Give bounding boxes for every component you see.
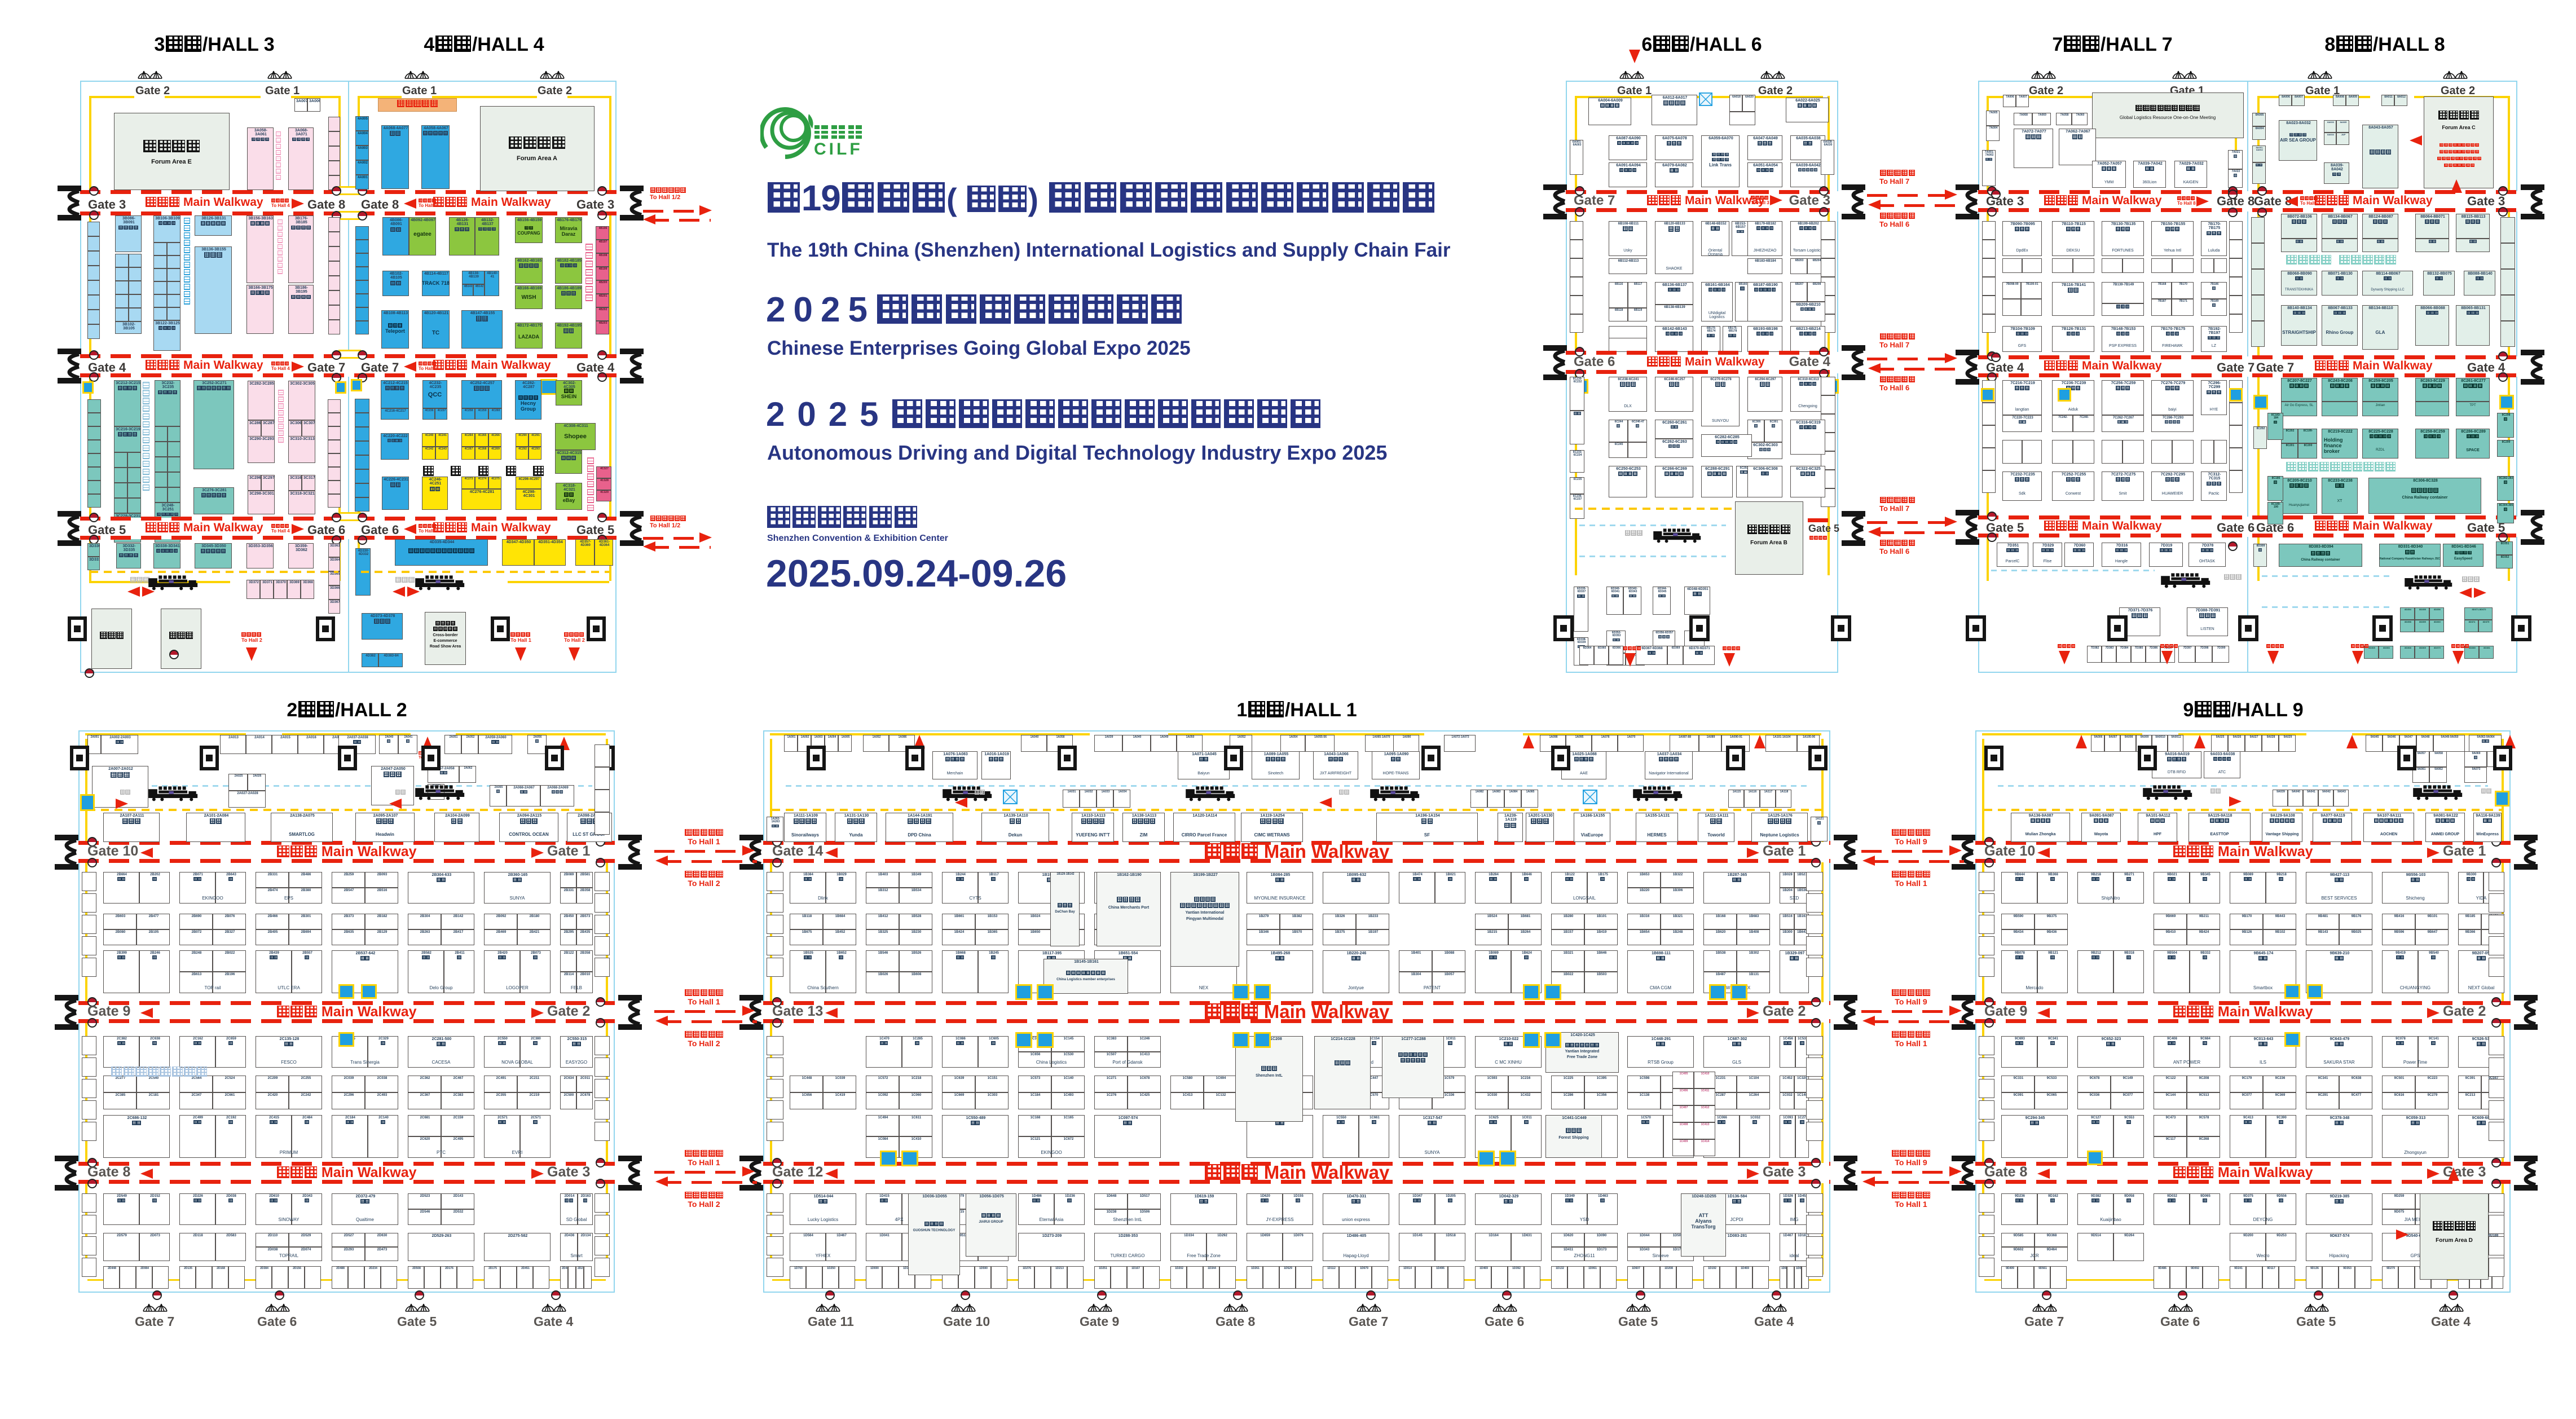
- svg-text:CILF: CILF: [814, 140, 863, 158]
